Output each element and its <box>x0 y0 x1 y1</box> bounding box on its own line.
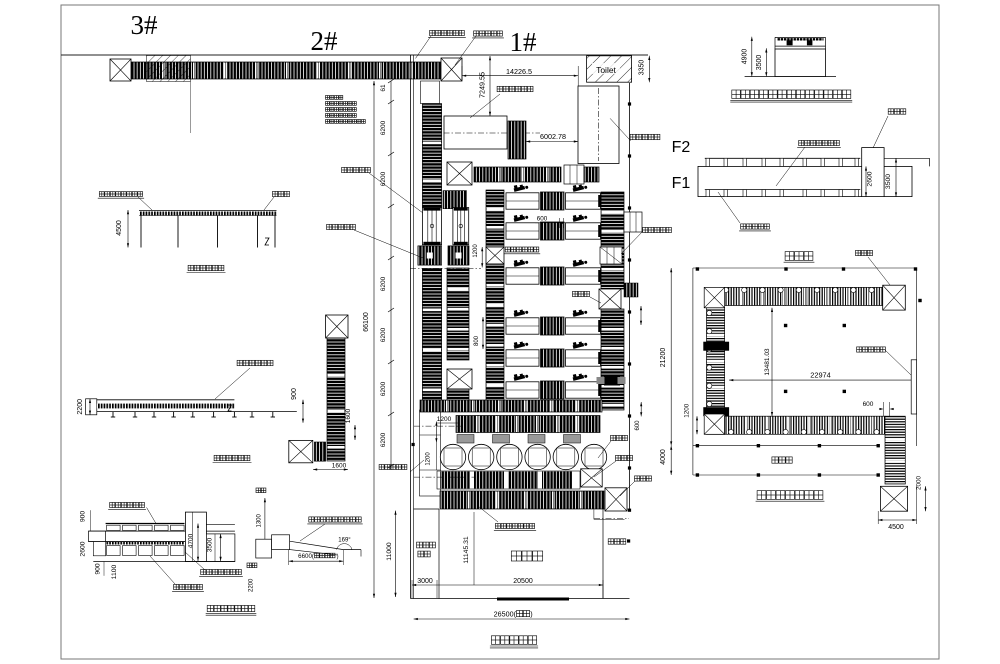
svg-text:3500: 3500 <box>207 537 214 552</box>
svg-text:2#: 2# <box>311 26 339 56</box>
svg-text:22974: 22974 <box>810 371 831 380</box>
svg-text:600: 600 <box>635 420 641 431</box>
svg-text:4500: 4500 <box>116 220 123 236</box>
svg-text:66100: 66100 <box>363 312 370 332</box>
svg-text:1200: 1200 <box>437 416 452 423</box>
svg-text:6200: 6200 <box>380 327 387 342</box>
svg-text:4900: 4900 <box>742 49 749 65</box>
svg-text:800: 800 <box>474 335 480 346</box>
svg-text:1200: 1200 <box>473 244 479 258</box>
svg-text:6002.78: 6002.78 <box>540 132 566 141</box>
svg-text:): ) <box>530 610 532 619</box>
svg-text:F2: F2 <box>672 139 691 156</box>
svg-text:61: 61 <box>380 84 387 92</box>
svg-text:3#: 3# <box>131 10 159 40</box>
svg-text:1600: 1600 <box>345 408 352 423</box>
svg-text:11145.31: 11145.31 <box>463 536 470 564</box>
svg-text:169°: 169° <box>338 538 351 544</box>
svg-text:600: 600 <box>863 401 874 408</box>
svg-text:1600: 1600 <box>332 463 347 470</box>
svg-text:26500(: 26500( <box>494 610 517 619</box>
svg-text:3500: 3500 <box>756 55 763 71</box>
svg-text:4500: 4500 <box>888 524 904 531</box>
svg-text:3350: 3350 <box>639 60 646 76</box>
svg-text:2600: 2600 <box>867 171 874 186</box>
svg-text:3000: 3000 <box>417 578 433 585</box>
svg-text:11000: 11000 <box>386 542 393 561</box>
svg-text:2200: 2200 <box>77 399 84 415</box>
svg-text:1200: 1200 <box>426 452 432 466</box>
svg-text:20500: 20500 <box>513 578 533 585</box>
svg-text:900: 900 <box>291 388 298 400</box>
svg-text:1100: 1100 <box>111 564 118 579</box>
svg-text:6200: 6200 <box>380 120 387 135</box>
svg-text:2600: 2600 <box>80 541 87 556</box>
svg-text:2200: 2200 <box>249 578 255 592</box>
svg-text:1200: 1200 <box>684 403 691 418</box>
svg-text:3500: 3500 <box>885 174 892 189</box>
svg-text:7249.55: 7249.55 <box>477 72 486 98</box>
svg-text:6200: 6200 <box>380 432 387 447</box>
svg-text:1#: 1# <box>510 27 538 57</box>
svg-text:14226.5: 14226.5 <box>506 67 532 76</box>
svg-text:6200: 6200 <box>380 276 387 291</box>
svg-text:4700: 4700 <box>188 533 195 548</box>
svg-text:900: 900 <box>95 563 102 575</box>
svg-text:6200: 6200 <box>380 381 387 396</box>
svg-text:6600(: 6600( <box>298 553 315 560</box>
svg-text:4000: 4000 <box>660 449 667 465</box>
svg-text:600: 600 <box>537 216 548 223</box>
svg-text:900: 900 <box>80 511 87 523</box>
svg-text:F1: F1 <box>672 175 691 192</box>
svg-text:21200: 21200 <box>660 348 667 368</box>
svg-text:Toilet: Toilet <box>596 65 616 75</box>
svg-text:13481.03: 13481.03 <box>764 348 771 375</box>
svg-text:): ) <box>336 553 338 560</box>
svg-text:1300: 1300 <box>257 513 263 527</box>
